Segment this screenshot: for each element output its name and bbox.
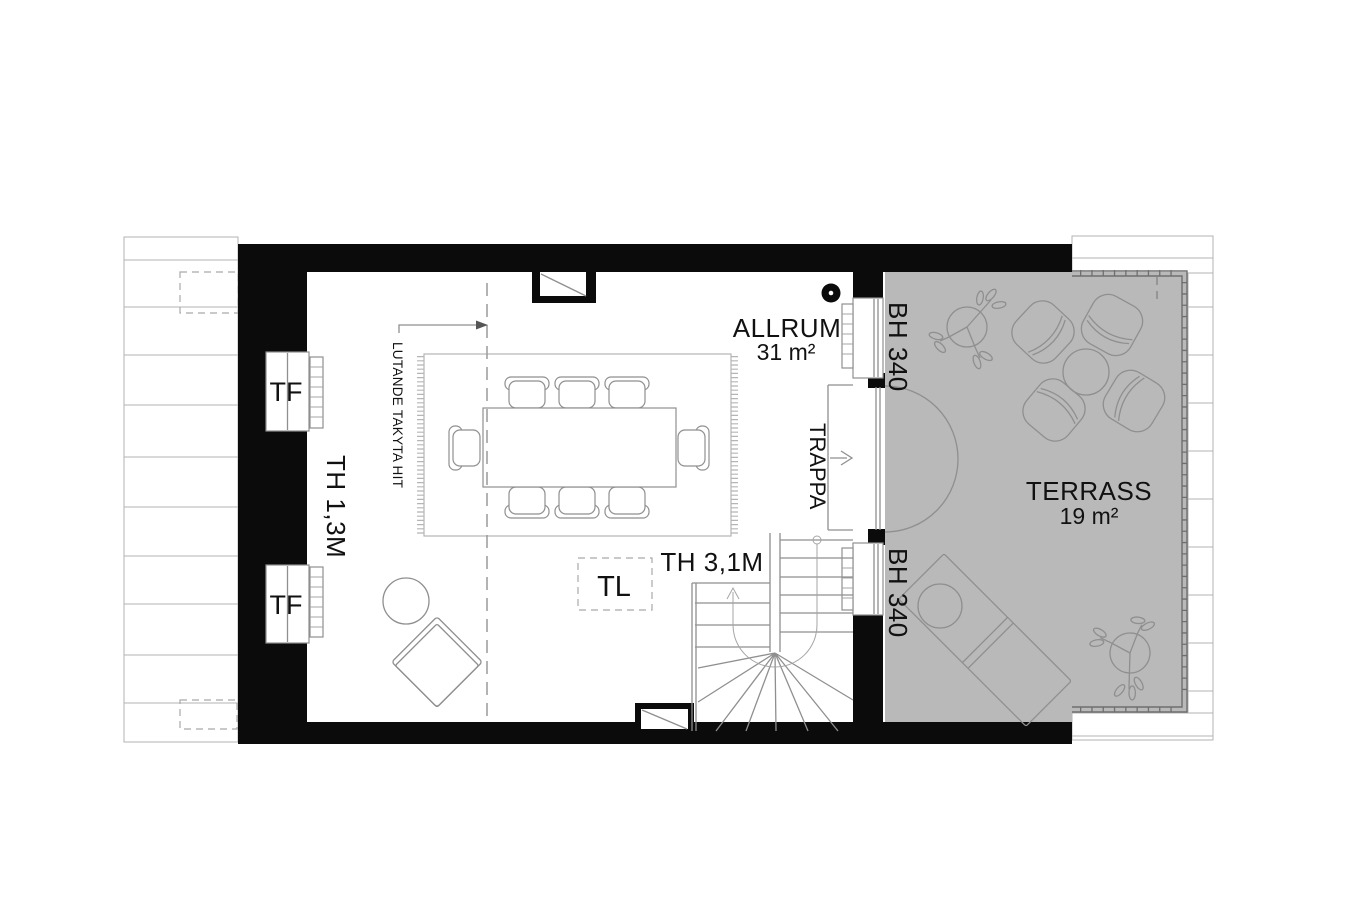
dining-chair	[555, 487, 599, 518]
label-tl: TL	[597, 571, 631, 603]
label-tf-bottom: TF	[270, 590, 303, 620]
label-terrass-area: 19 m²	[1060, 503, 1119, 529]
window-terrace-top	[853, 298, 883, 378]
label-bh-bottom: BH 340	[883, 548, 913, 638]
label-lutande-takyta: LUTANDE TAKYTA HIT	[390, 342, 405, 488]
stair-direction-arrow	[830, 451, 852, 465]
dining-chair	[678, 426, 709, 470]
column-marker	[822, 284, 841, 303]
label-th-left: TH 1,3M	[321, 455, 351, 558]
dining-chair	[505, 487, 549, 518]
floor-plan-page: ALLRUM 31 m² TERRASS 19 m² BH 340 BH 340…	[0, 0, 1366, 911]
dining-chair	[505, 377, 549, 408]
wall-niche-bottom	[635, 703, 694, 734]
sloped-ceiling-arrow	[399, 321, 488, 334]
radiator-hatch-tf-bottom	[310, 567, 323, 637]
label-allrum-area: 31 m²	[757, 339, 816, 365]
corner-armchair	[392, 617, 483, 708]
dining-table	[483, 408, 676, 487]
radiator-hatch-tf-top	[310, 357, 323, 428]
dining-chair	[605, 487, 649, 518]
floor-plan-drawing: ALLRUM 31 m² TERRASS 19 m² BH 340 BH 340…	[0, 0, 1366, 911]
dining-chair	[555, 377, 599, 408]
radiator-hatch-terrace-bottom	[842, 548, 853, 610]
wall-niche-top	[532, 272, 596, 303]
label-terrass: TERRASS	[1026, 476, 1152, 506]
radiator-hatch-terrace-top	[842, 304, 853, 368]
dining-chair	[605, 377, 649, 408]
roof-left	[124, 237, 238, 742]
label-bh-top: BH 340	[883, 302, 913, 392]
window-terrace-bottom	[853, 543, 883, 615]
label-trappa: TRAPPA	[805, 423, 830, 510]
label-tf-top: TF	[270, 377, 303, 407]
round-pouf	[383, 578, 429, 624]
label-th-stair: TH 3,1M	[660, 547, 763, 577]
dining-chair	[449, 426, 480, 470]
